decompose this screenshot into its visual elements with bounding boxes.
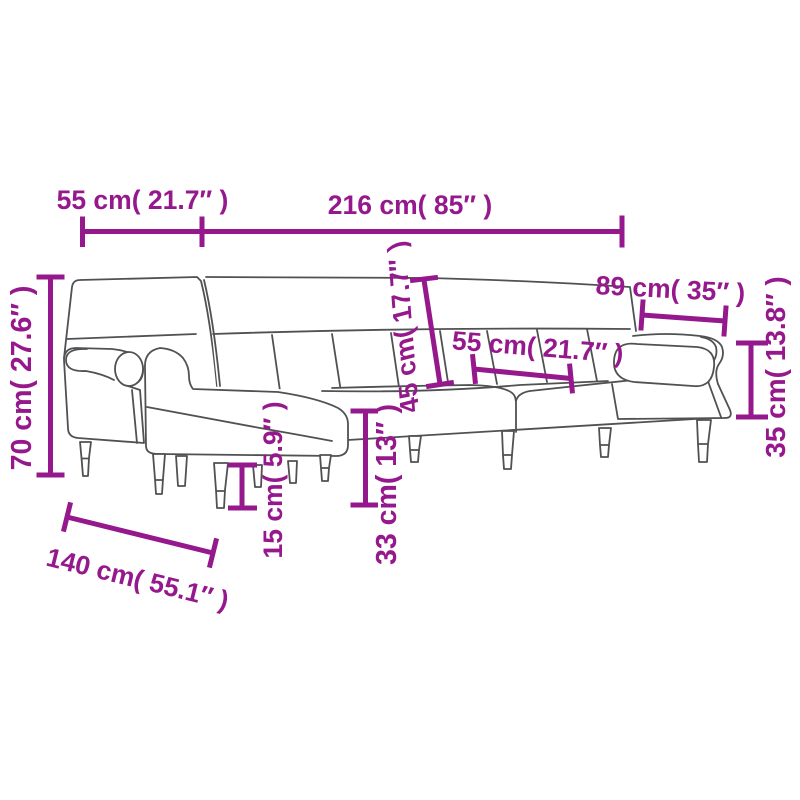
svg-text:70 cm( 27.6″ ): 70 cm( 27.6″ ) bbox=[6, 286, 38, 471]
svg-text:55 cm( 21.7″ ): 55 cm( 21.7″ ) bbox=[57, 185, 229, 215]
svg-text:33 cm( 13″ ): 33 cm( 13″ ) bbox=[371, 404, 403, 565]
svg-text:15 cm( 5.9″ ): 15 cm( 5.9″ ) bbox=[258, 401, 288, 558]
svg-text:35 cm( 13.8″ ): 35 cm( 13.8″ ) bbox=[760, 276, 791, 458]
svg-text:216 cm( 85″ ): 216 cm( 85″ ) bbox=[328, 190, 492, 220]
